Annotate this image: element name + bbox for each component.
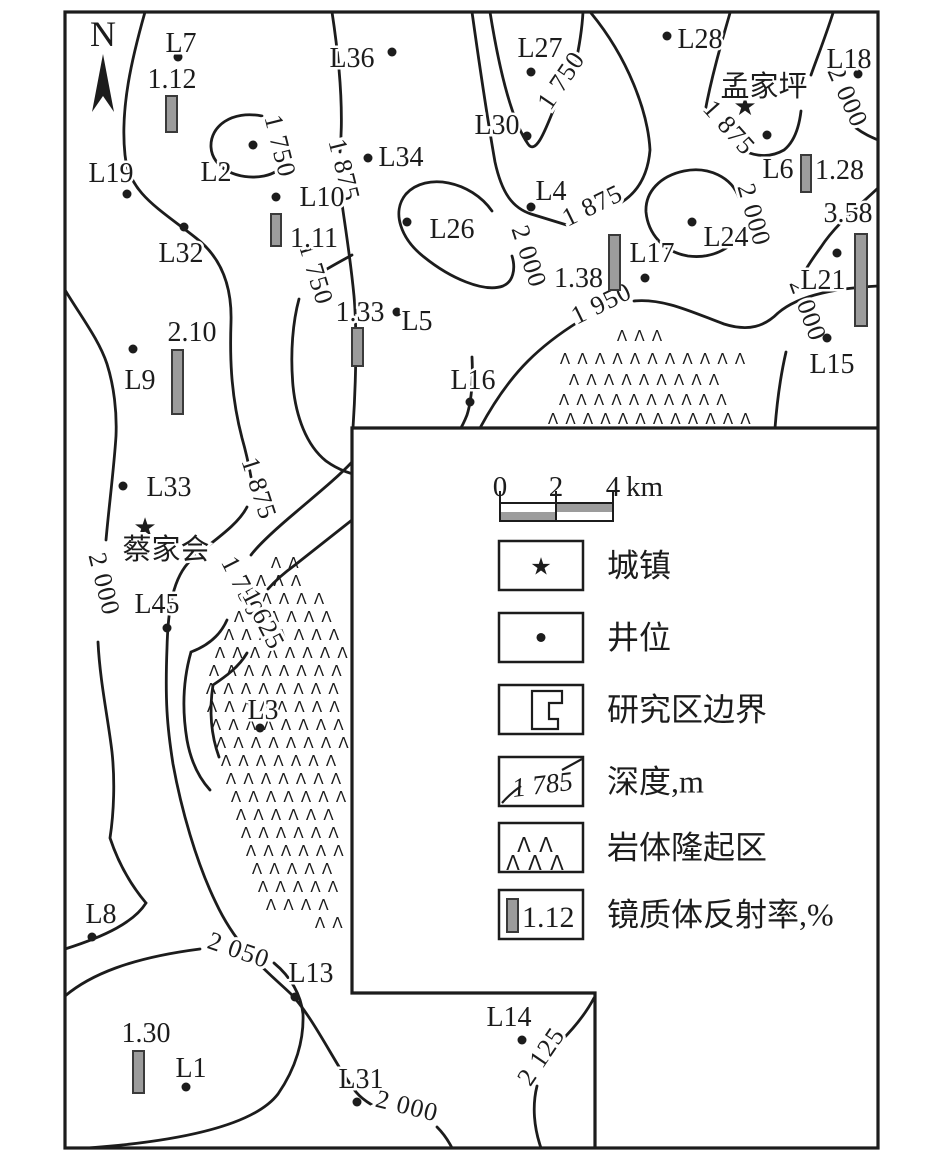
- uplift-zone-glyph: Λ: [285, 644, 296, 662]
- uplift-zone-glyph: Λ: [617, 327, 628, 345]
- uplift-zone-glyph: Λ: [298, 842, 309, 860]
- well-id-label: L36: [329, 43, 374, 74]
- uplift-zone-glyph: Λ: [293, 878, 304, 896]
- well-id-label: L7: [165, 28, 196, 59]
- well-dot-icon: [823, 334, 832, 343]
- well-dot-icon: [123, 190, 132, 199]
- well-id-label: L24: [703, 222, 748, 253]
- uplift-zone-glyph: Λ: [699, 391, 710, 409]
- uplift-zone-glyph: Λ: [273, 752, 284, 770]
- uplift-zone-glyph: Λ: [332, 914, 343, 932]
- uplift-zone-glyph: Λ: [261, 662, 272, 680]
- uplift-zone-glyph: Λ: [233, 734, 244, 752]
- uplift-zone-glyph: Λ: [318, 788, 329, 806]
- uplift-zone-glyph: Λ: [244, 662, 255, 680]
- well-marker: L10: [272, 182, 345, 213]
- well-id-label: L8: [85, 899, 116, 930]
- uplift-zone-glyph: Λ: [273, 572, 284, 590]
- well-marker: L28: [663, 24, 723, 55]
- well-marker: L9: [124, 345, 155, 397]
- uplift-zone-glyph: Λ: [576, 391, 587, 409]
- north-arrow-icon: [92, 54, 114, 112]
- well-dot-icon: [688, 218, 697, 227]
- uplift-zone-glyph: Λ: [263, 842, 274, 860]
- uplift-zone-glyph: Λ: [276, 824, 287, 842]
- well-marker: L18: [826, 44, 871, 79]
- well-id-label: L30: [474, 110, 519, 141]
- uplift-zone-glyph: Λ: [313, 770, 324, 788]
- uplift-zone-glyph: Λ: [294, 698, 305, 716]
- uplift-zone-glyph: Λ: [550, 851, 564, 875]
- well-marker: L33: [119, 472, 192, 503]
- uplift-zone-glyph: Λ: [323, 806, 334, 824]
- vitrinite-bar-icon: [133, 1051, 144, 1093]
- uplift-zone-glyph: Λ: [656, 371, 667, 389]
- well-id-label: L4: [535, 176, 566, 207]
- well-dot-icon: [88, 933, 97, 942]
- uplift-zone-glyph: Λ: [231, 788, 242, 806]
- vitrinite-value-label: 1.30: [122, 1018, 171, 1049]
- uplift-zone-glyph: Λ: [266, 896, 277, 914]
- uplift-zone-glyph: Λ: [206, 680, 217, 698]
- contour-line: [775, 352, 786, 428]
- well-marker: L26: [403, 214, 475, 245]
- well-id-label: L45: [134, 589, 179, 620]
- uplift-zone-glyph: Λ: [258, 878, 269, 896]
- uplift-zone-glyph: Λ: [301, 788, 312, 806]
- uplift-zone-glyph: Λ: [314, 590, 325, 608]
- vitrinite-bar: 1.38: [554, 235, 620, 294]
- uplift-zone-glyph: Λ: [310, 878, 321, 896]
- uplift-zone-glyph: Λ: [611, 391, 622, 409]
- well-marker: L6: [762, 131, 793, 186]
- uplift-zone-glyph: Λ: [333, 716, 344, 734]
- uplift-zone-glyph: Λ: [296, 770, 307, 788]
- well-id-label: L16: [450, 365, 495, 396]
- well-dot-icon: [527, 68, 536, 77]
- uplift-zone-glyph: Λ: [236, 806, 247, 824]
- uplift-zone-glyph: Λ: [321, 608, 332, 626]
- uplift-zone-glyph: Λ: [252, 860, 263, 878]
- uplift-zone-glyph: Λ: [647, 350, 658, 368]
- uplift-zone-glyph: Λ: [281, 716, 292, 734]
- well-dot-icon: [364, 154, 373, 163]
- well-id-label: L33: [146, 472, 191, 503]
- uplift-zone-glyph: Λ: [329, 626, 340, 644]
- well-dot-icon: [163, 624, 172, 633]
- well-id-label: L6: [762, 154, 793, 185]
- uplift-zone-glyph: Λ: [279, 662, 290, 680]
- uplift-zone-glyph: Λ: [329, 698, 340, 716]
- well-dot-icon: [119, 482, 128, 491]
- legend-item-label: 岩体隆起区: [607, 830, 767, 866]
- well-id-label: L13: [288, 958, 333, 989]
- well-marker: L30: [474, 110, 531, 141]
- uplift-zone-glyph: Λ: [652, 327, 663, 345]
- uplift-zone-glyph: Λ: [315, 914, 326, 932]
- vitrinite-bar: 2.10: [168, 317, 217, 414]
- uplift-zone-glyph: Λ: [328, 680, 339, 698]
- well-marker: L17: [629, 238, 674, 283]
- well-id-label: L2: [200, 157, 231, 188]
- uplift-zone-glyph: Λ: [316, 716, 327, 734]
- uplift-zone-glyph: Λ: [634, 327, 645, 345]
- uplift-zone-glyph: Λ: [281, 842, 292, 860]
- well-marker: L13: [288, 958, 333, 1002]
- uplift-zone-glyph: Λ: [286, 734, 297, 752]
- well-dot-icon: [527, 203, 536, 212]
- uplift-zone-glyph: Λ: [296, 590, 307, 608]
- scale-bar-segment: [500, 512, 556, 521]
- uplift-zone-glyph: Λ: [311, 626, 322, 644]
- town-marker: ★孟家坪: [720, 70, 807, 121]
- well-id-label: L10: [299, 182, 344, 213]
- uplift-zone-glyph: Λ: [328, 878, 339, 896]
- uplift-zone-glyph: Λ: [653, 410, 664, 428]
- uplift-zone-glyph: Λ: [288, 554, 299, 572]
- well-id-label: L5: [401, 306, 432, 337]
- town-name-label: 孟家坪: [720, 70, 807, 103]
- uplift-zone-glyph: Λ: [670, 410, 681, 428]
- uplift-zone-glyph: Λ: [251, 734, 262, 752]
- uplift-zone-glyph: Λ: [595, 350, 606, 368]
- well-dot-icon: [763, 131, 772, 140]
- uplift-zone-glyph: Λ: [269, 860, 280, 878]
- contour-line: [856, 128, 878, 140]
- uplift-zone-glyph: Λ: [278, 770, 289, 788]
- well-marker: L14: [486, 1002, 531, 1045]
- uplift-zone-glyph: Λ: [296, 662, 307, 680]
- uplift-zone-glyph: Λ: [286, 608, 297, 626]
- vitrinite-value-label: 1.33: [336, 297, 385, 328]
- vitrinite-bar-icon: [172, 350, 183, 414]
- vitrinite-value-label: 1.12: [148, 64, 197, 95]
- uplift-zone-glyph: Λ: [586, 371, 597, 389]
- uplift-zone-glyph: Λ: [688, 410, 699, 428]
- well-marker: L7: [165, 28, 196, 62]
- uplift-zone-glyph: Λ: [261, 770, 272, 788]
- well-dot-icon: [537, 633, 546, 642]
- vitrinite-bar-icon: [855, 234, 867, 326]
- uplift-zone-glyph: Λ: [691, 371, 702, 389]
- uplift-zone-glyph: Λ: [604, 371, 615, 389]
- well-marker: L5: [393, 306, 433, 337]
- uplift-zone-glyph: Λ: [528, 851, 542, 875]
- vitrinite-bar-icon: [271, 214, 281, 246]
- well-dot-icon: [466, 398, 475, 407]
- uplift-zone-glyph: Λ: [600, 410, 611, 428]
- uplift-zone-glyph: Λ: [304, 860, 315, 878]
- uplift-zone-glyph: Λ: [629, 391, 640, 409]
- well-id-label: L17: [629, 238, 674, 269]
- uplift-zone-glyph: Λ: [216, 734, 227, 752]
- contour-depth-label: 1 750: [258, 112, 302, 181]
- uplift-zone-glyph: Λ: [226, 662, 237, 680]
- uplift-zone-glyph: Λ: [705, 410, 716, 428]
- uplift-zone-glyph: Λ: [224, 626, 235, 644]
- uplift-zone-glyph: Λ: [665, 350, 676, 368]
- vitrinite-bar-icon: [507, 899, 518, 932]
- legend-item-label: 镜质体反射率,%: [607, 897, 834, 933]
- contour-line: [437, 1127, 452, 1148]
- figure-page: ΛΛΛΛΛΛΛΛΛΛΛΛΛΛΛΛΛΛΛΛΛΛΛΛΛΛΛΛΛΛΛΛΛΛΛΛΛΛΛΛ…: [0, 0, 945, 1152]
- uplift-zone-glyph: Λ: [268, 734, 279, 752]
- uplift-zone-glyph: Λ: [321, 734, 332, 752]
- well-dot-icon: [388, 48, 397, 57]
- scale-bar-segment: [556, 503, 613, 512]
- vitrinite-value-label: 1.28: [815, 155, 864, 186]
- uplift-zone-glyph: Λ: [228, 716, 239, 734]
- well-dot-icon: [518, 1036, 527, 1045]
- uplift-zone-glyph: Λ: [336, 788, 347, 806]
- uplift-zone-glyph: Λ: [283, 896, 294, 914]
- legend-item-label: 研究区边界: [607, 692, 767, 728]
- uplift-zone-glyph: Λ: [283, 788, 294, 806]
- uplift-zone-glyph: Λ: [311, 824, 322, 842]
- well-marker: L1: [175, 1053, 206, 1092]
- contour-line: [534, 1086, 541, 1148]
- well-id-label: L26: [429, 214, 474, 245]
- uplift-zone-glyph: Λ: [664, 391, 675, 409]
- vitrinite-bar: 3.58: [824, 198, 873, 326]
- well-dot-icon: [249, 141, 258, 150]
- north-arrow: N: [90, 14, 116, 112]
- uplift-zone-glyph: Λ: [266, 788, 277, 806]
- uplift-zone-glyph: Λ: [716, 391, 727, 409]
- vitrinite-bar: 1.12: [148, 64, 197, 132]
- vitrinite-bar-icon: [801, 155, 811, 192]
- uplift-zone-glyph: Λ: [612, 350, 623, 368]
- uplift-zone-glyph: Λ: [635, 410, 646, 428]
- well-id-label: L27: [517, 33, 562, 64]
- uplift-zone-glyph: Λ: [700, 350, 711, 368]
- uplift-zone-glyph: Λ: [256, 752, 267, 770]
- contour-depth-label: 2 050: [204, 926, 273, 974]
- uplift-zone-glyph: Λ: [682, 350, 693, 368]
- well-marker: L19: [88, 158, 133, 199]
- uplift-zone-glyph: Λ: [681, 391, 692, 409]
- well-id-label: L1: [175, 1053, 206, 1084]
- uplift-zone-glyph: Λ: [569, 371, 580, 389]
- vitrinite-bar-icon: [352, 328, 363, 366]
- uplift-zone-glyph: Λ: [271, 806, 282, 824]
- well-marker: L24: [688, 218, 749, 254]
- uplift-zone-glyph: Λ: [322, 860, 333, 878]
- well-id-label: L19: [88, 158, 133, 189]
- uplift-zone-glyph: Λ: [630, 350, 641, 368]
- uplift-zone-glyph: Λ: [618, 410, 629, 428]
- uplift-zone-glyph: Λ: [577, 350, 588, 368]
- vitrinite-bar: 1.28: [801, 155, 864, 192]
- legend-item-label: 井位: [607, 620, 671, 656]
- town-marker: ★蔡家会: [122, 513, 209, 566]
- uplift-zone-glyph: Λ: [253, 806, 264, 824]
- uplift-zone-glyph: Λ: [271, 554, 282, 572]
- well-dot-icon: [403, 218, 412, 227]
- well-dot-icon: [272, 193, 281, 202]
- vitrinite-value-label: 1.38: [554, 263, 603, 294]
- uplift-zone-glyph: Λ: [740, 410, 751, 428]
- uplift-zone-glyph: Λ: [250, 644, 261, 662]
- well-id-label: L3: [247, 695, 278, 726]
- uplift-zone-glyph: Λ: [326, 752, 337, 770]
- vitrinite-bar-icon: [166, 96, 177, 132]
- uplift-zone-glyph: Λ: [639, 371, 650, 389]
- uplift-zone-glyph: Λ: [328, 824, 339, 842]
- contour-line: [65, 949, 200, 996]
- uplift-zone-glyph: Λ: [294, 626, 305, 644]
- uplift-zone-glyph: Λ: [338, 734, 349, 752]
- uplift-zone-glyph: Λ: [318, 896, 329, 914]
- uplift-zone-glyph: Λ: [308, 752, 319, 770]
- uplift-zone-glyph: Λ: [291, 752, 302, 770]
- uplift-zone-glyph: Λ: [258, 824, 269, 842]
- well-dot-icon: [523, 132, 532, 141]
- contour-line: [591, 13, 650, 202]
- uplift-zone-glyph: Λ: [320, 644, 331, 662]
- uplift-zone-glyph: Λ: [311, 680, 322, 698]
- well-id-label: L34: [378, 142, 423, 173]
- contour-depth-label: 2 000: [82, 550, 126, 619]
- uplift-zone-glyph: Λ: [303, 734, 314, 752]
- well-marker: L36: [329, 43, 396, 74]
- uplift-zone-glyph: Λ: [207, 698, 218, 716]
- uplift-zone-glyph: Λ: [298, 716, 309, 734]
- contour-depth-label: 1 875: [557, 178, 627, 232]
- uplift-zone-glyph: Λ: [594, 391, 605, 409]
- uplift-zone-glyph: Λ: [223, 680, 234, 698]
- uplift-zone-glyph: Λ: [288, 806, 299, 824]
- uplift-zone-glyph: Λ: [224, 698, 235, 716]
- uplift-zone-glyph: Λ: [709, 371, 720, 389]
- uplift-zone-glyph: Λ: [246, 842, 257, 860]
- uplift-zone-glyph: Λ: [287, 860, 298, 878]
- legend-item-label: 深度,m: [607, 764, 704, 800]
- uplift-zone-glyph: Λ: [316, 842, 327, 860]
- well-marker: L45: [134, 589, 179, 633]
- vitrinite-bar: 1.11: [271, 214, 338, 254]
- well-dot-icon: [129, 345, 138, 354]
- uplift-zone-glyph: Λ: [717, 350, 728, 368]
- uplift-zone-glyph: Λ: [241, 824, 252, 842]
- uplift-zone-glyph: Λ: [232, 644, 243, 662]
- north-label: N: [90, 14, 116, 54]
- well-id-label: L32: [158, 238, 203, 269]
- well-id-label: L18: [826, 44, 871, 75]
- uplift-zone-glyph: Λ: [565, 410, 576, 428]
- town-name-label: 蔡家会: [122, 533, 209, 566]
- well-dot-icon: [291, 993, 300, 1002]
- contour-line: [561, 998, 594, 1041]
- well-dot-icon: [353, 1098, 362, 1107]
- well-id-label: L28: [677, 24, 722, 55]
- uplift-zone-glyph: Λ: [621, 371, 632, 389]
- uplift-zone-glyph: Λ: [241, 626, 252, 644]
- vitrinite-bar: 1.33: [336, 297, 385, 366]
- uplift-zone-glyph: Λ: [506, 851, 520, 875]
- well-marker: L32: [158, 223, 203, 270]
- well-id-label: L14: [486, 1002, 531, 1033]
- well-marker: L2: [200, 141, 257, 189]
- well-marker: L34: [364, 142, 424, 173]
- scale-bar-unit: km: [626, 471, 664, 503]
- well-dot-icon: [180, 223, 189, 232]
- uplift-zone-glyph: Λ: [226, 770, 237, 788]
- well-id-label: L15: [809, 349, 854, 380]
- uplift-zone-glyph: Λ: [243, 770, 254, 788]
- well-dot-icon: [663, 32, 672, 41]
- town-star-icon: ★: [530, 555, 552, 581]
- uplift-zone-glyph: Λ: [238, 752, 249, 770]
- well-marker: L4: [527, 176, 567, 212]
- uplift-zone-glyph: Λ: [279, 590, 290, 608]
- contour-line: [332, 12, 341, 152]
- well-dot-icon: [393, 308, 402, 317]
- uplift-zone-glyph: Λ: [583, 410, 594, 428]
- uplift-zone-glyph: Λ: [314, 662, 325, 680]
- uplift-zone-glyph: Λ: [293, 824, 304, 842]
- well-marker: L21: [800, 249, 845, 297]
- uplift-zone-glyph: Λ: [291, 572, 302, 590]
- uplift-zone-glyph: Λ: [337, 644, 348, 662]
- uplift-zone-glyph: Λ: [301, 896, 312, 914]
- uplift-zone-glyph: Λ: [548, 410, 559, 428]
- uplift-zone-glyph: Λ: [312, 698, 323, 716]
- well-id-label: L21: [800, 265, 845, 296]
- uplift-zone-glyph: Λ: [333, 842, 344, 860]
- uplift-zone-glyph: Λ: [302, 644, 313, 662]
- uplift-zone-glyph: Λ: [209, 662, 220, 680]
- uplift-zone-glyph: Λ: [559, 391, 570, 409]
- geological-depth-map: ΛΛΛΛΛΛΛΛΛΛΛΛΛΛΛΛΛΛΛΛΛΛΛΛΛΛΛΛΛΛΛΛΛΛΛΛΛΛΛΛ…: [0, 0, 945, 1152]
- uplift-zone-glyph: Λ: [331, 770, 342, 788]
- uplift-zone-glyph: Λ: [331, 662, 342, 680]
- uplift-zone-glyph: Λ: [211, 716, 222, 734]
- vitrinite-value-label: 2.10: [168, 317, 217, 348]
- uplift-zone-glyph: Λ: [735, 350, 746, 368]
- contour-line: [65, 290, 116, 540]
- well-id-label: L9: [124, 365, 155, 396]
- uplift-zone-glyph: Λ: [674, 371, 685, 389]
- uplift-zone-glyph: Λ: [221, 752, 232, 770]
- well-id-label: L31: [338, 1064, 383, 1095]
- vitrinite-bar: 1.30: [122, 1018, 171, 1093]
- uplift-zone-glyph: Λ: [306, 806, 317, 824]
- uplift-zone-glyph: Λ: [248, 788, 259, 806]
- well-marker: L16: [450, 365, 495, 407]
- uplift-zone-glyph: Λ: [646, 391, 657, 409]
- vitrinite-bar-icon: [609, 235, 620, 290]
- vitrinite-value-label: 1.11: [290, 223, 338, 254]
- legend-item-label: 城镇: [607, 548, 671, 584]
- uplift-zone-glyph: Λ: [293, 680, 304, 698]
- uplift-zone-glyph: Λ: [275, 878, 286, 896]
- well-dot-icon: [641, 274, 650, 283]
- uplift-zone-glyph: Λ: [560, 350, 571, 368]
- uplift-zone-glyph: Λ: [304, 608, 315, 626]
- vitrinite-sample-value: 1.12: [522, 901, 575, 934]
- well-dot-icon: [833, 249, 842, 258]
- uplift-zone-glyph: Λ: [215, 644, 226, 662]
- vitrinite-value-label: 3.58: [824, 198, 873, 229]
- uplift-zone-glyph: Λ: [723, 410, 734, 428]
